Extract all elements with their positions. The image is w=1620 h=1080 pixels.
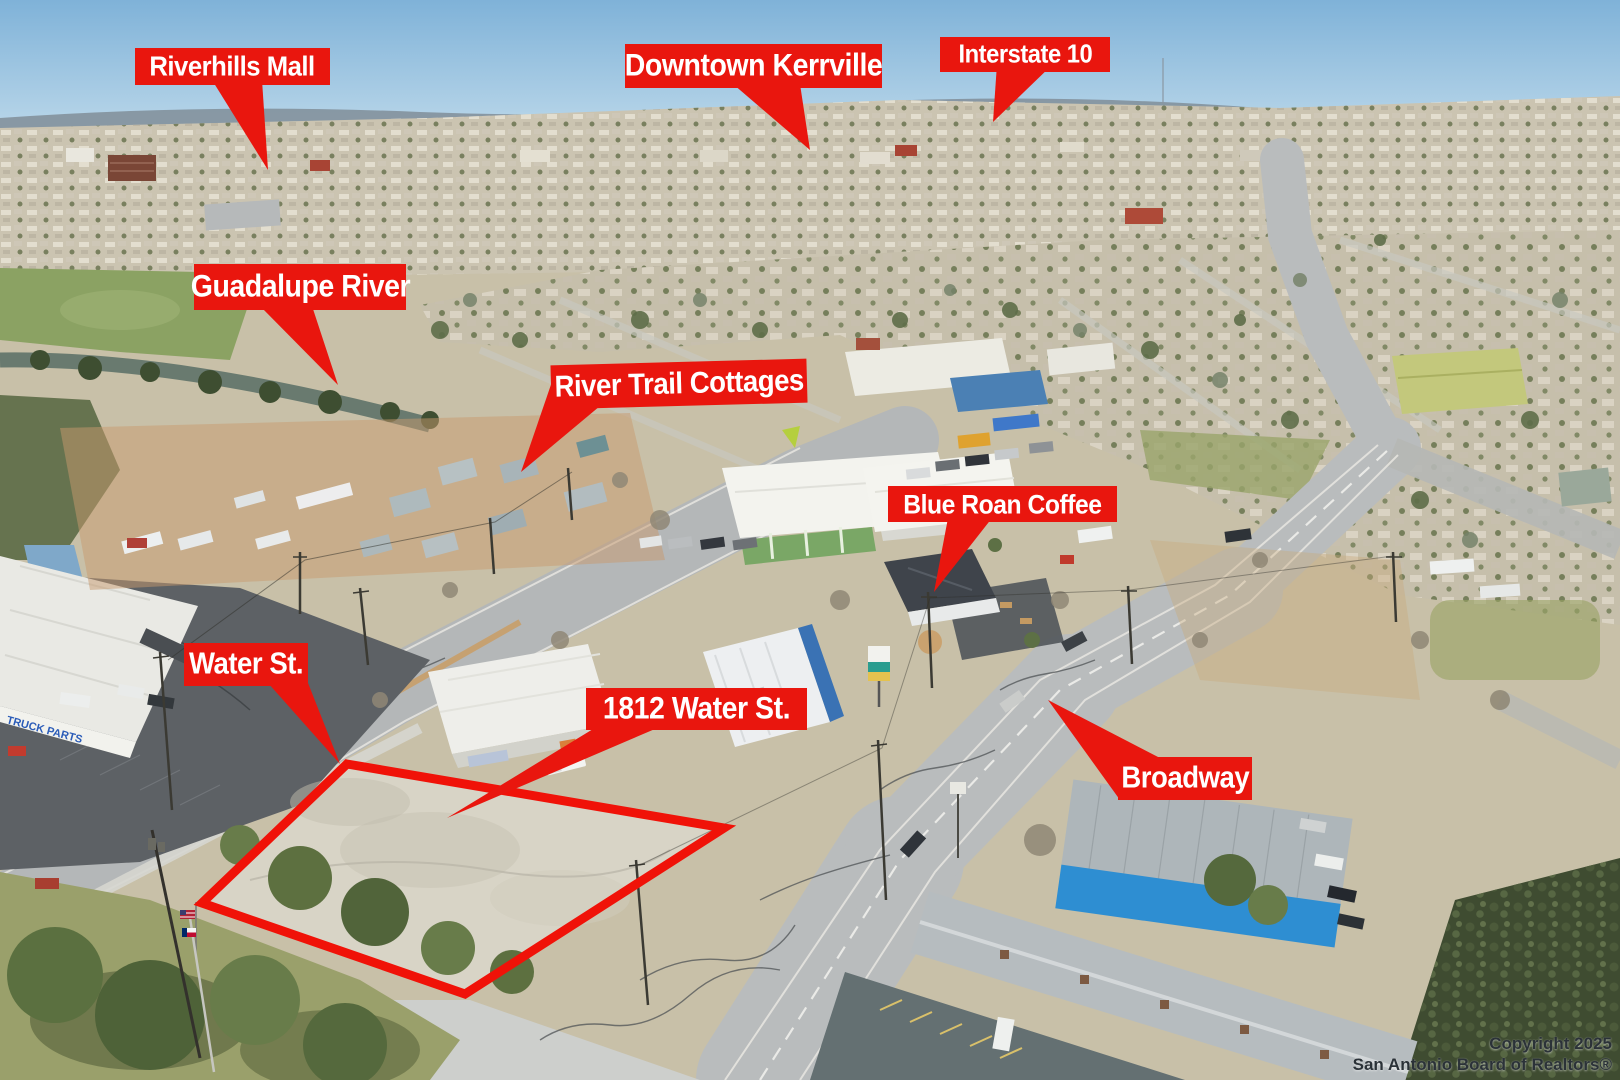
callout-broadway: Broadway [1118, 757, 1252, 800]
copyright-line2: San Antonio Board of Realtors® [1353, 1054, 1612, 1075]
callout-blue-roan-coffee: Blue Roan Coffee [888, 486, 1117, 522]
callout-riverhills-mall: Riverhills Mall [135, 48, 330, 85]
callout-water-st: Water St. [184, 643, 308, 686]
copyright-watermark: Copyright 2025 San Antonio Board of Real… [1353, 1033, 1612, 1076]
copyright-line1: Copyright 2025 [1353, 1033, 1612, 1054]
callout-label: Blue Roan Coffee [903, 488, 1101, 520]
callout-interstate-10: Interstate 10 [940, 37, 1110, 72]
callout-1812-water-st: 1812 Water St. [586, 688, 807, 730]
callout-downtown-kerrville: Downtown Kerrville [625, 44, 882, 88]
callout-label: Water St. [189, 647, 303, 681]
aerial-photo-background: TRUCK PARTS [0, 0, 1620, 1080]
aerial-listing-photo: TRUCK PARTS [0, 0, 1620, 1080]
texas-flag [182, 928, 196, 937]
callout-label: Broadway [1121, 761, 1249, 795]
us-flag [180, 910, 195, 919]
callout-river-trail-cottages: River Trail Cottages [550, 359, 807, 410]
callout-label: Riverhills Mall [150, 50, 315, 82]
callout-label: Downtown Kerrville [625, 48, 882, 83]
callout-label: Guadalupe River [190, 269, 409, 304]
callout-guadalupe-river: Guadalupe River [194, 264, 406, 310]
callout-label: Interstate 10 [958, 39, 1092, 69]
callout-label: 1812 Water St. [603, 691, 790, 726]
callout-label: River Trail Cottages [554, 364, 804, 405]
